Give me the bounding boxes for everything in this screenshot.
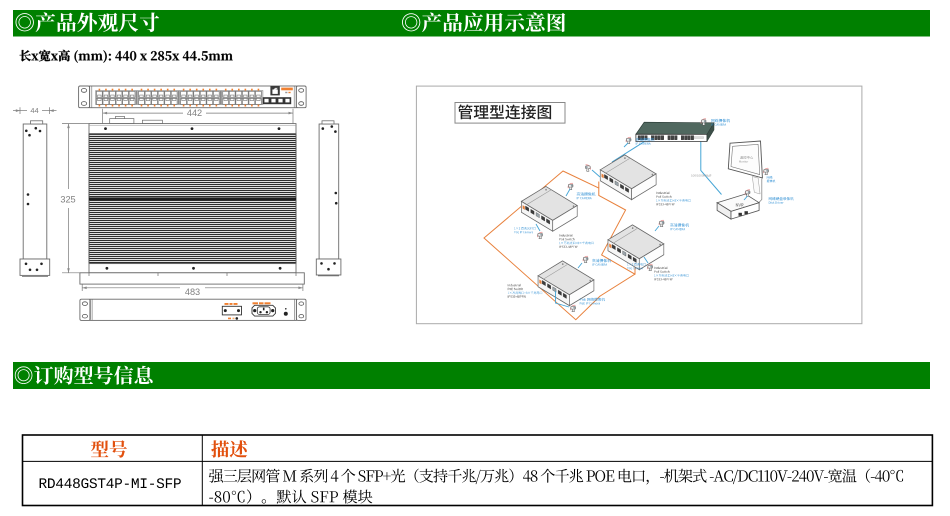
svg-text:100/1000M: 100/1000M xyxy=(691,174,707,178)
svg-text:325: 325 xyxy=(60,194,75,204)
svg-text:483: 483 xyxy=(185,287,200,297)
svg-text:442: 442 xyxy=(187,108,202,118)
svg-text:Monitor: Monitor xyxy=(739,160,748,164)
svg-text:44: 44 xyxy=(30,106,38,115)
